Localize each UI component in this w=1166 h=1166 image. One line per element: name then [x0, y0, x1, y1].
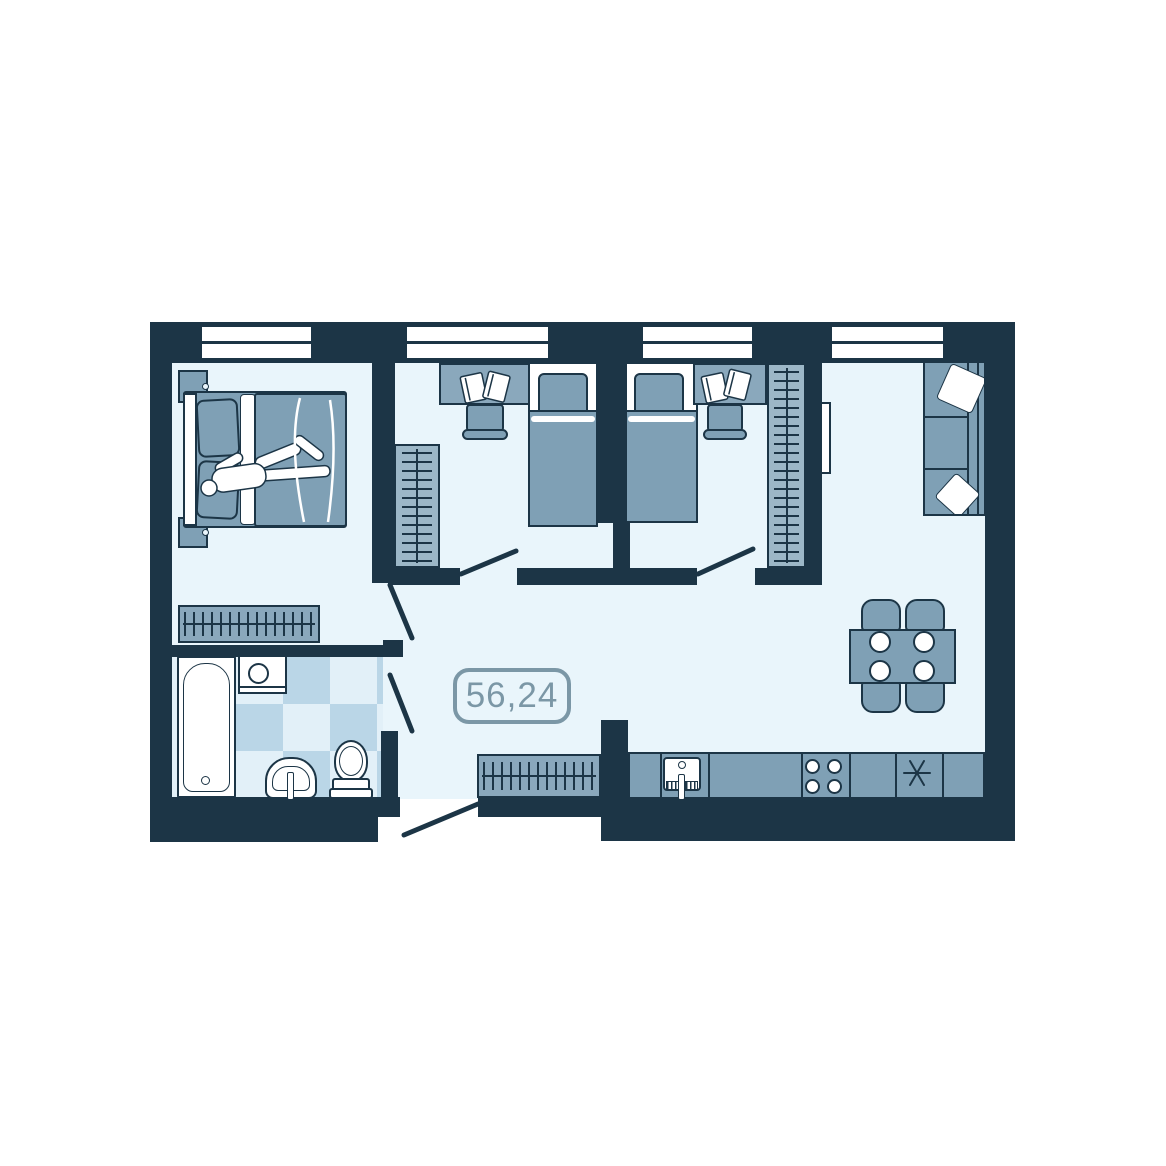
- rack-rail: [183, 623, 315, 625]
- dining-chair: [905, 680, 945, 713]
- nightstand-knob: [202, 529, 209, 536]
- rack-rail: [482, 775, 596, 777]
- rack-rail: [786, 368, 788, 563]
- area-value: 56,24: [466, 676, 559, 716]
- corner-sofa: [923, 361, 986, 516]
- cooktop-burner: [827, 779, 842, 794]
- cooktop-burner: [827, 759, 842, 774]
- kitchen-sink-hole: [678, 761, 686, 769]
- plate: [913, 631, 935, 653]
- bathtub-drain: [201, 776, 210, 785]
- bathroom-tile: [283, 657, 330, 704]
- window-4: [832, 327, 943, 341]
- window-3: [643, 327, 752, 341]
- bed-blanket: [254, 393, 347, 527]
- exterior-wall-bottom-mid: [478, 798, 601, 817]
- window-4: [832, 344, 943, 358]
- dining-chair: [861, 680, 901, 713]
- bathroom-tile: [377, 657, 383, 704]
- desk-chair: [707, 404, 743, 432]
- kitchen-sink-drain: [685, 781, 698, 790]
- kitchen-faucet: [678, 774, 685, 800]
- bathroom-right-wall: [381, 731, 398, 797]
- desk-chair: [466, 404, 504, 432]
- counter-divider: [942, 754, 944, 797]
- bed-headboard: [183, 393, 197, 526]
- cooktop-burner: [805, 759, 820, 774]
- nightstand-knob: [202, 383, 209, 390]
- dining-chair: [861, 599, 901, 632]
- desk: [693, 363, 767, 405]
- bed-blanket: [625, 410, 698, 523]
- bed-blanket: [528, 410, 598, 527]
- hallway-kitchen-stub-wall: [601, 720, 628, 841]
- desk-chair-back: [462, 429, 508, 440]
- washing-machine-door: [248, 663, 269, 684]
- rooms-south-wall-mid: [517, 568, 697, 585]
- window-2: [407, 344, 548, 358]
- counter-divider: [895, 754, 897, 797]
- blanket-fold: [531, 416, 595, 422]
- exterior-wall-right: [985, 322, 1015, 841]
- entry-door-jamb: [378, 797, 400, 817]
- hallway-wardrobe: [477, 754, 601, 798]
- window-1: [202, 344, 311, 358]
- dining-chair: [905, 599, 945, 632]
- window-3: [643, 344, 752, 358]
- bathtub-basin: [183, 663, 230, 792]
- exterior-wall-bottom-left: [150, 797, 378, 842]
- plate: [869, 660, 891, 682]
- bed-pillow: [196, 398, 241, 458]
- entrance-door-leaf: [404, 804, 478, 835]
- sofa-seam: [925, 468, 969, 470]
- dining-table: [849, 629, 956, 684]
- plate: [913, 660, 935, 682]
- bathroom-sink-tap: [287, 772, 294, 800]
- counter-divider: [708, 754, 710, 797]
- counter-divider: [849, 754, 851, 797]
- toilet-bowl-inner: [339, 746, 363, 776]
- wall-room2-room3-upper: [598, 363, 627, 523]
- wardrobe: [394, 444, 440, 568]
- bed-pillow: [196, 460, 241, 520]
- plate: [869, 631, 891, 653]
- area-badge: 56,24: [453, 668, 571, 724]
- exterior-wall-left: [150, 322, 172, 841]
- exterior-wall-bottom-right: [628, 799, 1015, 841]
- tv: [820, 402, 831, 474]
- bedroom-clothes-rack: [178, 605, 320, 643]
- window-2: [407, 327, 548, 341]
- wall-bedroom1-room2-upper: [372, 363, 395, 583]
- sofa-seam: [925, 416, 969, 418]
- rack-rail: [416, 449, 418, 563]
- window-1: [202, 327, 311, 341]
- bathroom-tile: [236, 704, 283, 751]
- counter-divider: [801, 754, 803, 797]
- cooktop-burner: [805, 779, 820, 794]
- washing-machine-panel: [240, 686, 285, 688]
- room2-south-wall: [388, 568, 460, 585]
- floor-plan: 56,24: [0, 0, 1166, 1166]
- desk: [439, 363, 531, 405]
- desk-chair-back: [703, 429, 747, 440]
- blanket-fold: [628, 416, 695, 422]
- counter-divider: [660, 754, 662, 797]
- sofa-pillow: [934, 472, 981, 516]
- wardrobe: [767, 363, 806, 568]
- wall-room3-living: [806, 363, 822, 585]
- toilet-base: [329, 788, 373, 799]
